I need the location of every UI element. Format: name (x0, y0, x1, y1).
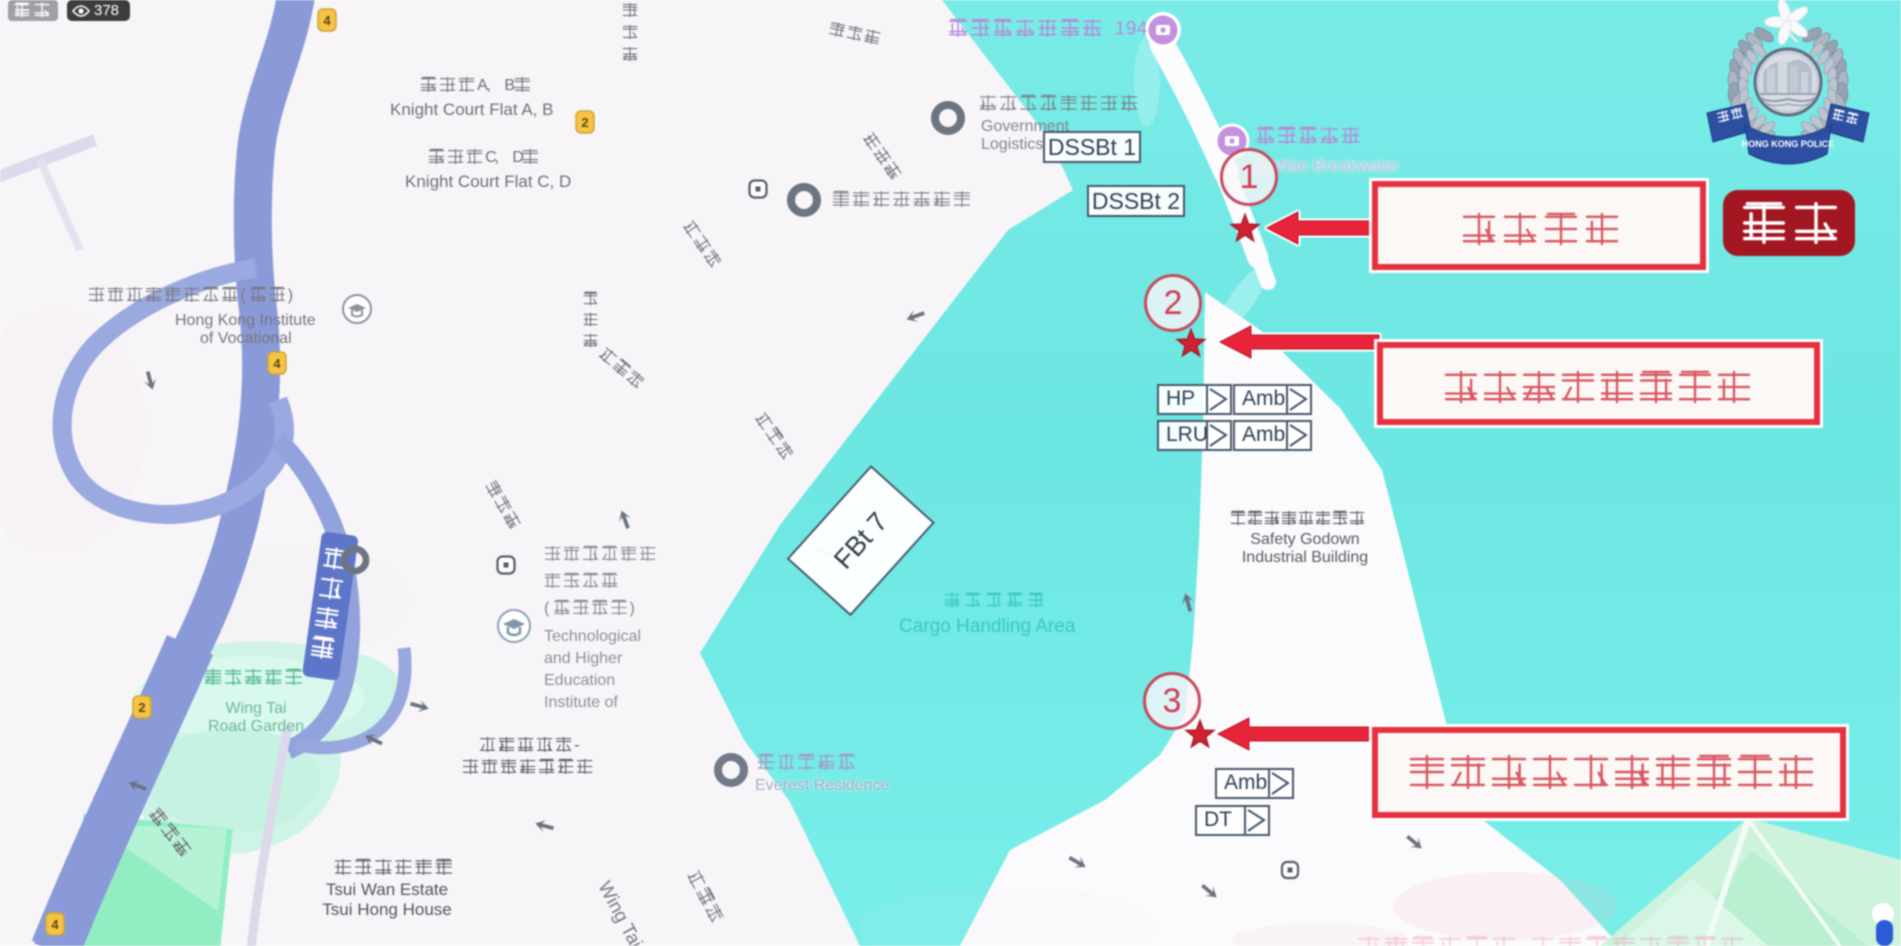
svg-text:HONG KONG POLICE: HONG KONG POLICE (1742, 139, 1835, 149)
